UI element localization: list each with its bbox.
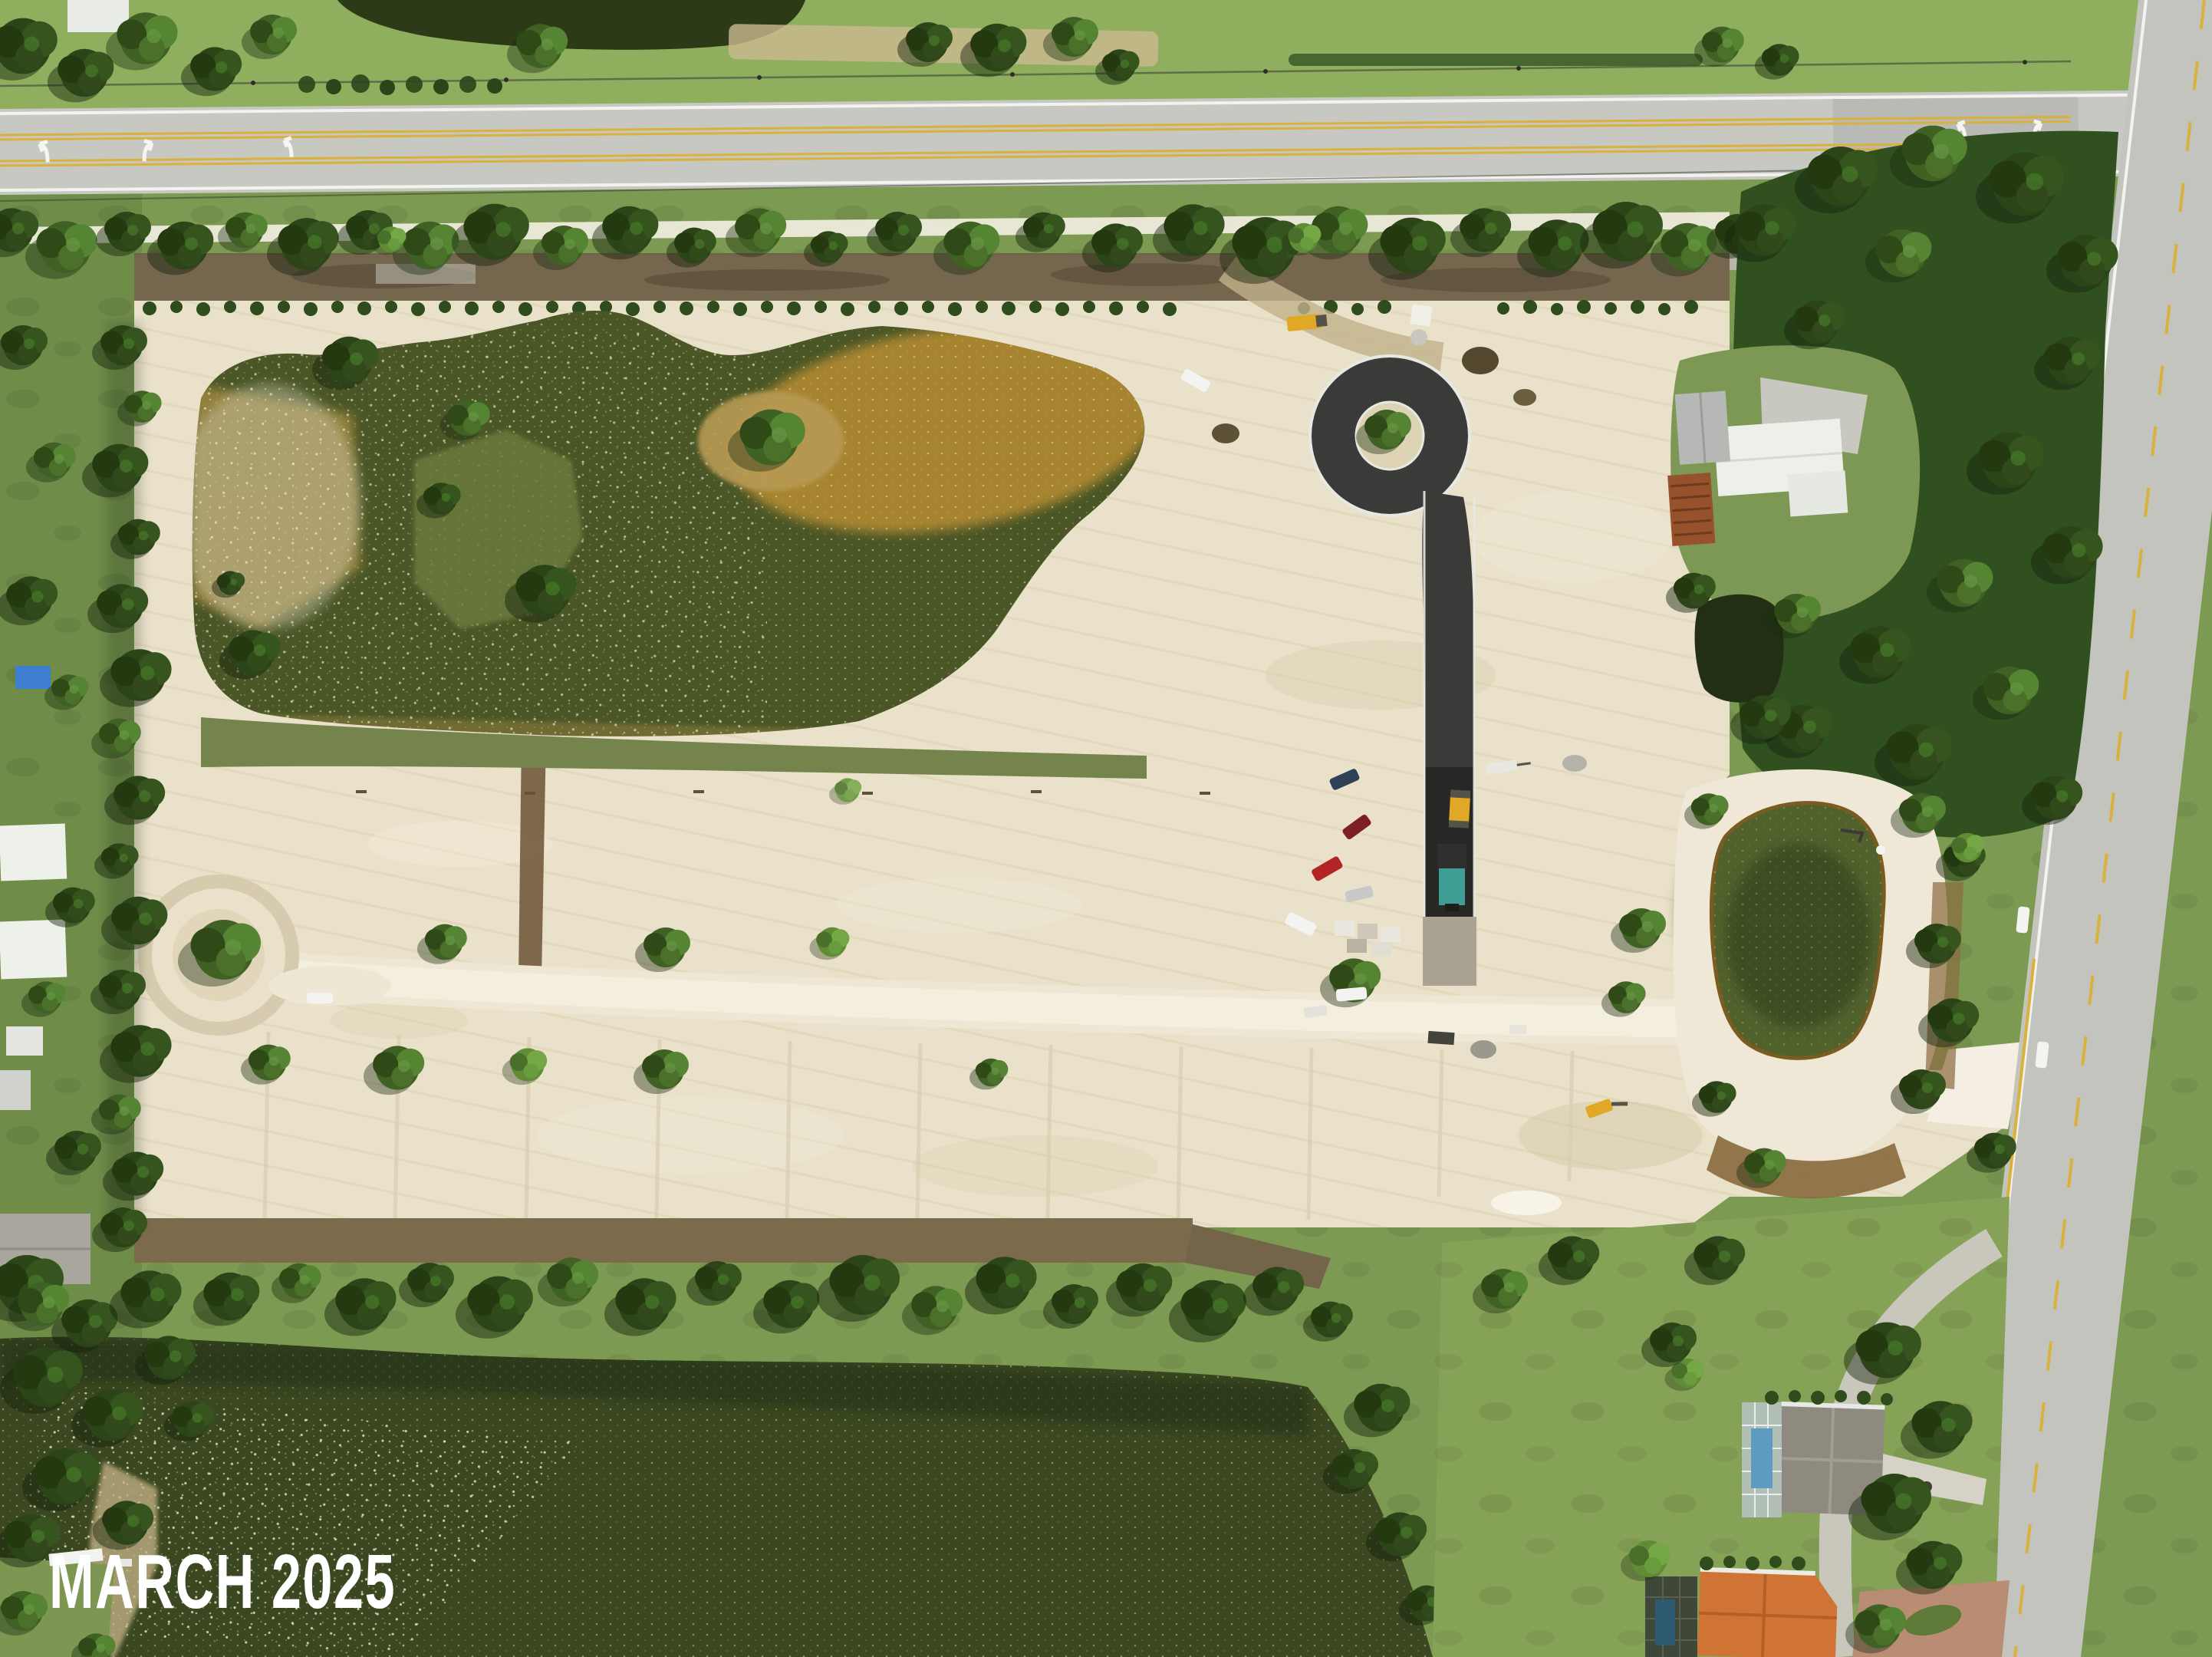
paver-machine: [1437, 844, 1466, 911]
swimming-pool: [1751, 1428, 1773, 1488]
white-roof-building-2: [0, 920, 67, 980]
gray-metal-shed: [1675, 390, 1730, 464]
pool-enclosure-gray-house: [1742, 1402, 1782, 1517]
blue-tarp: [15, 666, 51, 689]
right-forest: [1666, 126, 2118, 838]
date-label: MARCH 2025: [49, 1539, 396, 1625]
hedgerow-strip: [518, 736, 546, 978]
white-shed-2: [6, 1026, 43, 1056]
sand-pile: [1491, 1191, 1562, 1215]
roller-machine: [1449, 789, 1471, 828]
pool-enclosure-orange-house: [1645, 1576, 1697, 1657]
white-roof-building-1: [0, 824, 67, 881]
orange-roof-house: [1697, 1567, 1838, 1657]
aerial-photo-march-2025: MARCH 2025: [0, 0, 2212, 1657]
south-berm: [134, 1218, 1193, 1263]
rusty-structure: [1667, 473, 1715, 546]
dirt-mound-2: [1212, 423, 1239, 443]
pond-work-vehicle: [1876, 845, 1885, 855]
hedge-line: [1289, 54, 1703, 66]
aerial-scene: MARCH 2025: [0, 0, 2212, 1657]
car-white-road: [307, 993, 333, 1003]
gray-shed: [0, 1070, 31, 1110]
equipment-gray: [1562, 755, 1587, 772]
bottom-right-residential: [1433, 1197, 2010, 1657]
pool-dark: [1655, 1599, 1675, 1645]
dirt-mound-3: [1513, 389, 1536, 406]
small-pond: [1695, 595, 1784, 703]
date-overlay: MARCH 2025: [49, 1539, 396, 1625]
dirt-mound-1: [1462, 347, 1499, 374]
unpaved-base: [1423, 917, 1476, 986]
